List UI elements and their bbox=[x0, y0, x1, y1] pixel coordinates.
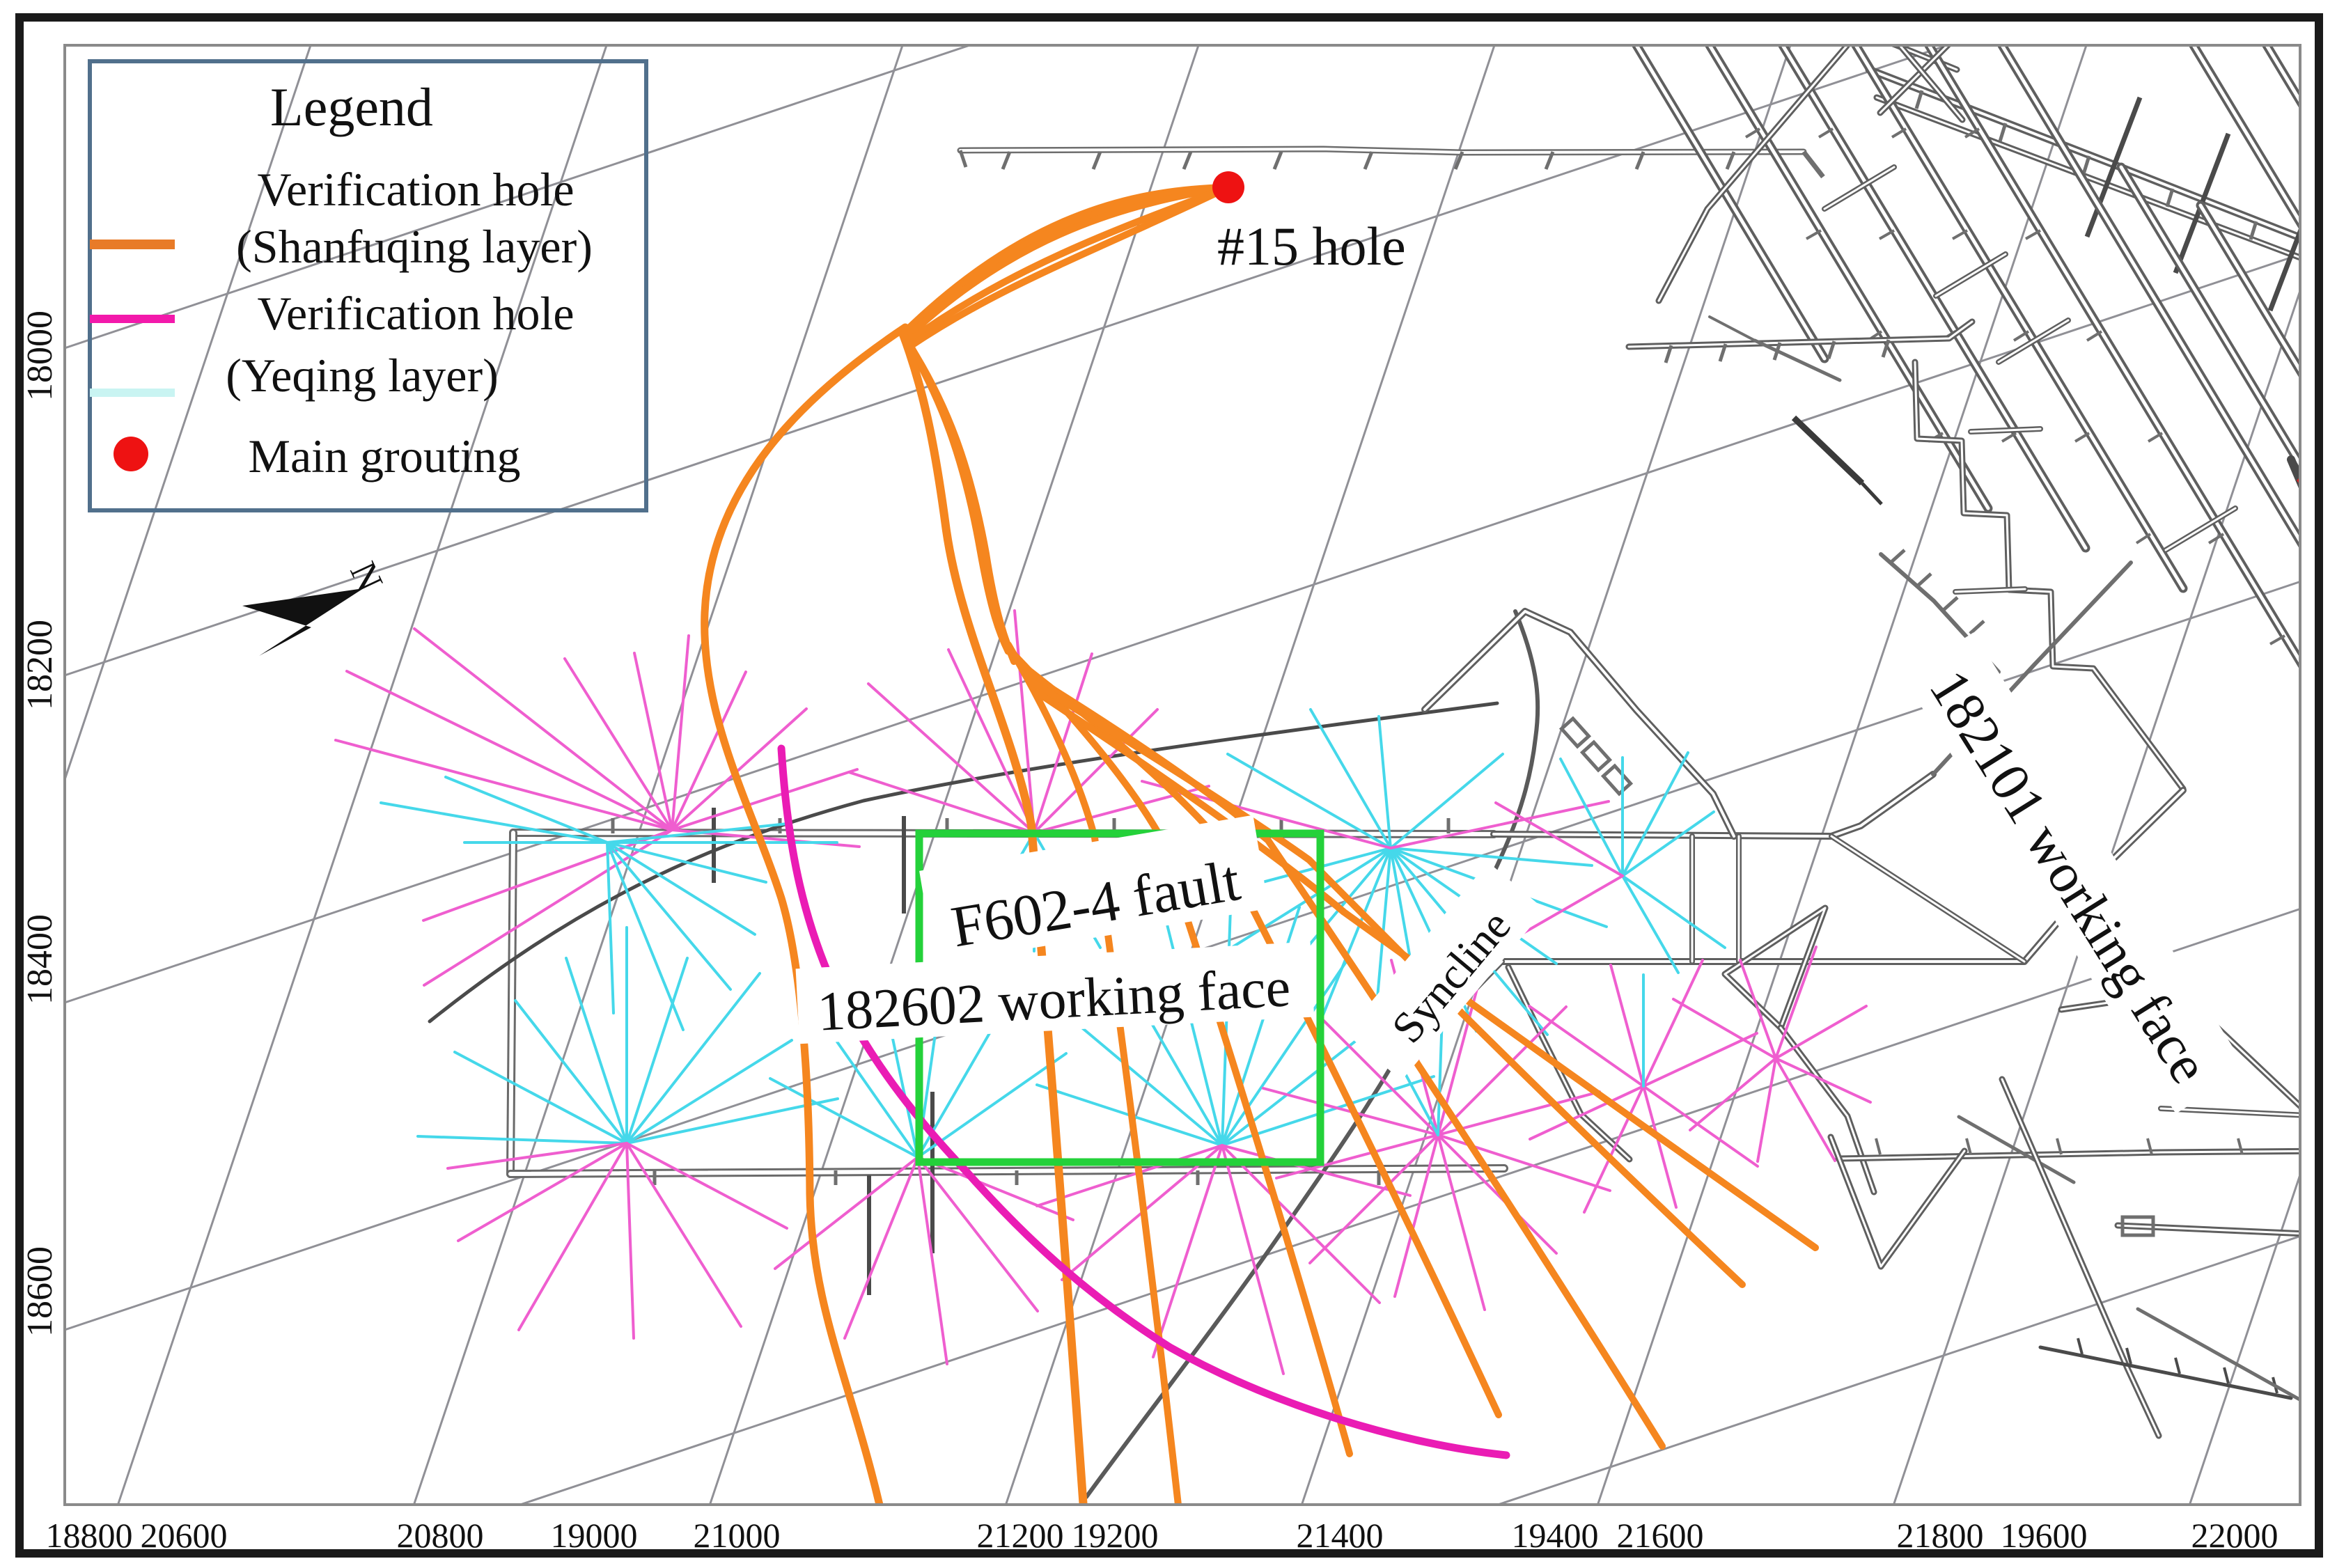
svg-text:20600: 20600 bbox=[141, 1516, 228, 1555]
svg-text:Legend: Legend bbox=[270, 77, 433, 137]
svg-text:18800: 18800 bbox=[46, 1516, 133, 1555]
svg-text:21600: 21600 bbox=[1617, 1516, 1704, 1555]
svg-text:22000: 22000 bbox=[2191, 1516, 2279, 1555]
svg-text:(Yeqing layer): (Yeqing layer) bbox=[226, 349, 499, 402]
svg-text:#15 hole: #15 hole bbox=[1217, 216, 1406, 276]
svg-text:21200: 21200 bbox=[977, 1516, 1064, 1555]
svg-text:21800: 21800 bbox=[1897, 1516, 1984, 1555]
svg-text:18600: 18600 bbox=[20, 1246, 60, 1337]
svg-text:Main grouting: Main grouting bbox=[249, 430, 521, 483]
svg-text:19600: 19600 bbox=[2001, 1516, 2088, 1555]
svg-text:19200: 19200 bbox=[1072, 1516, 1159, 1555]
svg-text:Verification hole: Verification hole bbox=[257, 287, 574, 340]
svg-text:21000: 21000 bbox=[694, 1516, 781, 1555]
svg-text:19000: 19000 bbox=[551, 1516, 638, 1555]
svg-text:21400: 21400 bbox=[1297, 1516, 1384, 1555]
svg-text:(Shanfuqing layer): (Shanfuqing layer) bbox=[236, 220, 593, 273]
svg-text:20800: 20800 bbox=[397, 1516, 484, 1555]
svg-text:19400: 19400 bbox=[1512, 1516, 1599, 1555]
svg-text:18400: 18400 bbox=[20, 914, 60, 1005]
svg-text:18200: 18200 bbox=[20, 620, 60, 710]
svg-text:Verification hole: Verification hole bbox=[257, 163, 574, 216]
svg-text:18000: 18000 bbox=[20, 311, 60, 401]
